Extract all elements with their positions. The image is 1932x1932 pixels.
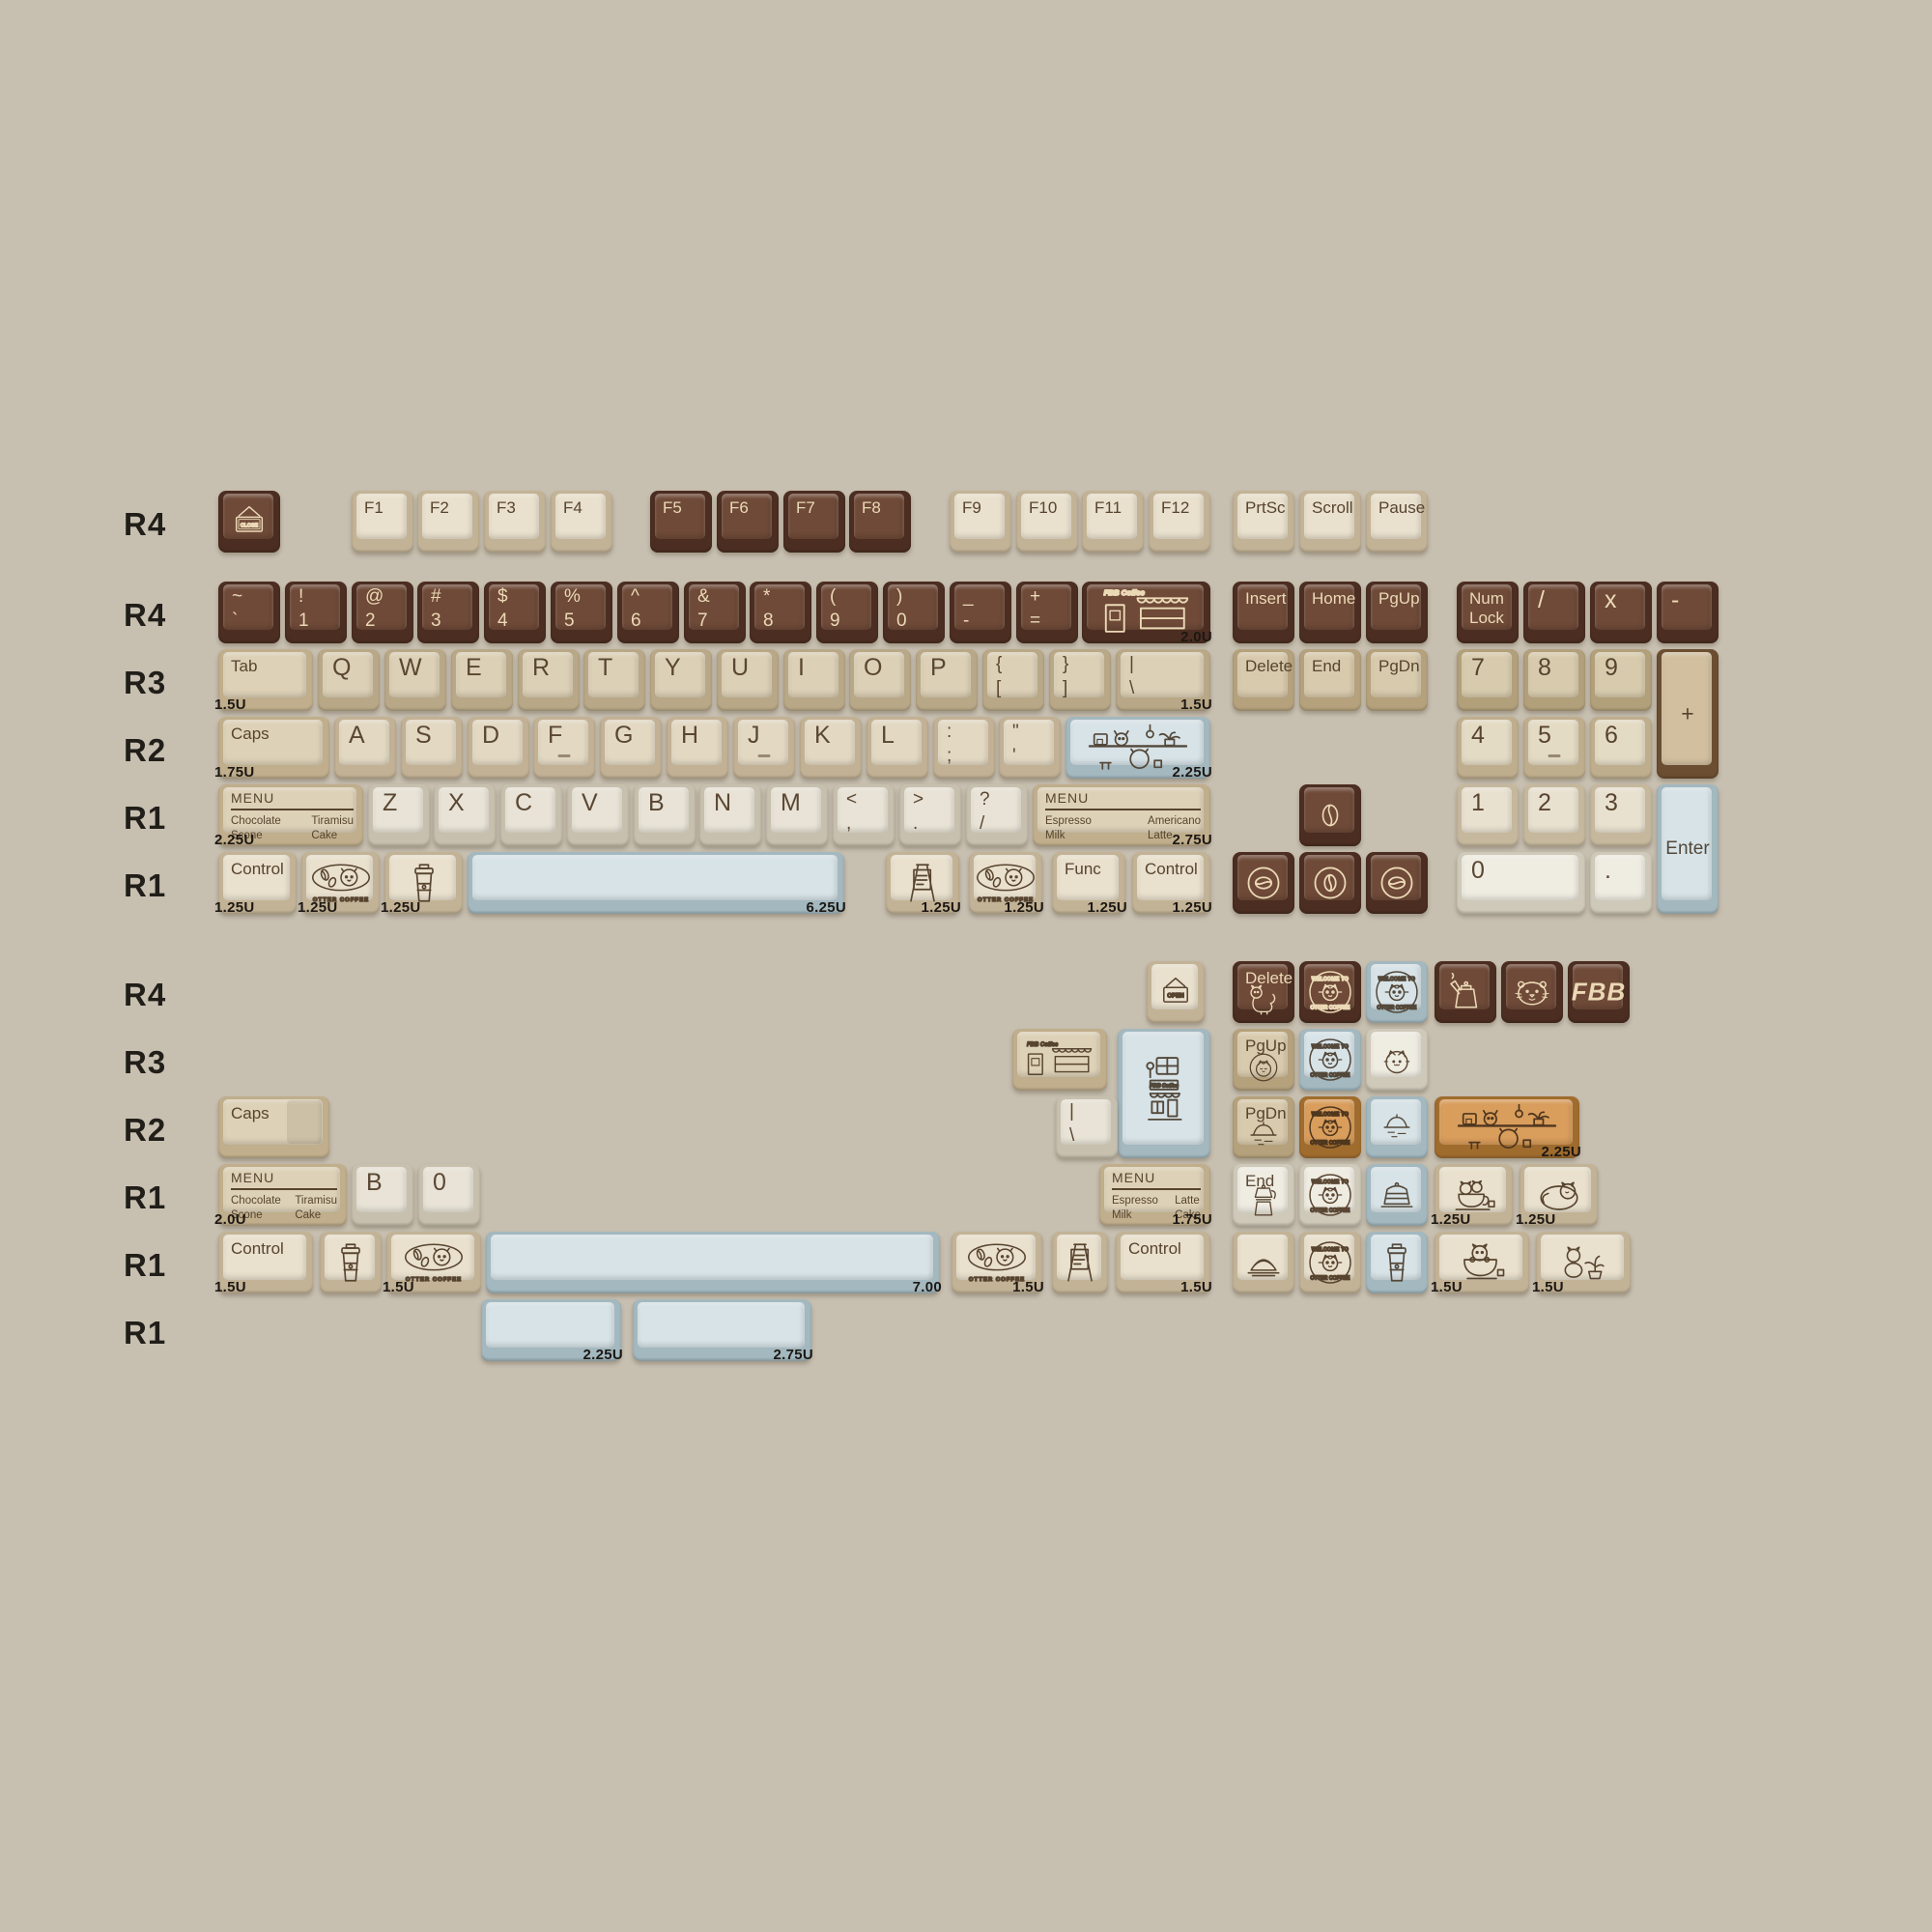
key-legend: PgDn <box>1378 657 1420 676</box>
menu-column: Espresso Milk <box>1045 814 1092 843</box>
key-bean-left <box>1233 852 1294 914</box>
catplant-icon <box>1561 1245 1605 1280</box>
size-label: 2.25U <box>582 1347 623 1363</box>
key-np-minus: - <box>1657 582 1719 643</box>
aframe-icon <box>905 862 940 904</box>
key-legend-pair: { [ <box>996 652 1002 700</box>
stamp-icon <box>1308 1037 1353 1083</box>
menu-title: MENU <box>1045 790 1201 810</box>
size-label: 1.5U <box>214 1279 246 1295</box>
keycap-top-face <box>987 652 1037 697</box>
catcurl-icon <box>1536 1178 1582 1212</box>
catstand-icon <box>1246 984 1281 1015</box>
otterface-icon <box>1513 976 1551 1009</box>
key-legend: - <box>1671 586 1679 614</box>
key-e: E <box>451 649 513 711</box>
beanc-icon <box>1313 866 1348 900</box>
key-space-625: 6.25U <box>468 852 844 914</box>
key-open-sign <box>1147 961 1205 1023</box>
key-w: W <box>384 649 446 711</box>
key-legend: 1 <box>1471 789 1485 817</box>
key-legend: x <box>1605 586 1617 614</box>
key-home: Home <box>1299 582 1361 643</box>
key-num9: ( 9 <box>816 582 878 643</box>
key-num8: * 8 <box>750 582 811 643</box>
key-legend: R <box>532 654 550 682</box>
key-legend: Home <box>1312 589 1355 609</box>
key-comma: < , <box>833 784 895 846</box>
key-legend: F3 <box>497 498 516 518</box>
key-caps-stepped: Caps <box>218 1096 329 1158</box>
key-end-moka: End <box>1233 1164 1294 1226</box>
key-cake-blue <box>1366 1164 1428 1226</box>
key-legend: 2 <box>1538 789 1551 817</box>
key-bean-mid <box>1299 852 1361 914</box>
keycap-set-board: R4R4R3R2R1R1R4R3R2R1R1R1F1F2F3F4F5F6F7F8… <box>0 0 1932 1932</box>
key-legend: Pause <box>1378 498 1425 518</box>
key-menu-175: MENUEspresso MilkLatte Cake1.75U <box>1099 1164 1210 1226</box>
key-lbracket: { [ <box>982 649 1044 711</box>
key-backslash: | \1.5U <box>1116 649 1210 711</box>
key-legend: PrtSc <box>1245 498 1286 518</box>
keycap-top-face <box>1595 720 1645 765</box>
keycap-top-face <box>1061 1099 1111 1145</box>
keycap-top-face <box>888 584 938 630</box>
row-label-6: R4 <box>124 977 166 1013</box>
key-pgup: PgUp <box>1366 582 1428 643</box>
key-control-2: Control1.25U <box>1132 852 1210 914</box>
key-f9: F9 <box>950 491 1011 553</box>
key-o: O <box>849 649 911 711</box>
key-legend: 8 <box>1538 654 1551 682</box>
key-cup-blue <box>1366 1232 1428 1293</box>
row-label-2: R3 <box>124 665 166 701</box>
row-label-1: R4 <box>124 597 166 634</box>
keycap-top-face <box>422 584 472 630</box>
key-control-1: Control1.25U <box>218 852 297 914</box>
menu-title: MENU <box>231 1170 337 1190</box>
key-stamp-blue-2 <box>1299 1029 1361 1091</box>
key-x: X <box>434 784 496 846</box>
key-np6: 6 <box>1590 717 1652 779</box>
keycap-top-face <box>1528 652 1578 697</box>
bean-icon <box>1316 800 1345 831</box>
key-f6: F6 <box>717 491 779 553</box>
key-np8: 8 <box>1523 649 1585 711</box>
key-y: Y <box>650 649 712 711</box>
key-prtsc: PrtSc <box>1233 491 1294 553</box>
key-tab: Tab1.5U <box>218 649 313 711</box>
key-np5: 5 <box>1523 717 1585 779</box>
key-space-700: 7.00 <box>486 1232 940 1293</box>
key-legend-pair: < , <box>846 787 857 836</box>
key-f10: F10 <box>1016 491 1078 553</box>
key-legend: A <box>349 722 365 750</box>
key-legend: Delete <box>1245 657 1293 676</box>
row-label-8: R2 <box>124 1112 166 1149</box>
key-legend: H <box>681 722 698 750</box>
key-f2: F2 <box>417 491 479 553</box>
key-delete-cat: Delete <box>1233 961 1294 1023</box>
key-legend: X <box>448 789 465 817</box>
stamp-icon <box>1308 970 1353 1015</box>
keycap-top-face <box>1595 787 1645 833</box>
size-label: 1.25U <box>1004 899 1044 916</box>
key-f12: F12 <box>1149 491 1210 553</box>
beanc-icon <box>1379 866 1414 900</box>
key-legend: Insert <box>1245 589 1287 609</box>
key-legend-pair: _ - <box>963 584 974 633</box>
key-np-plus: + <box>1657 649 1719 779</box>
key-t: T <box>583 649 645 711</box>
key-rbracket: } ] <box>1049 649 1111 711</box>
cake-icon <box>1378 1179 1416 1211</box>
key-np2: 2 <box>1523 784 1585 846</box>
otterlogo-icon <box>975 862 1037 904</box>
key-legend-pair: " ' <box>1012 720 1019 768</box>
key-legend-pair: & 7 <box>697 584 710 633</box>
key-otter-coffee-4: 1.5U <box>952 1232 1042 1293</box>
homing-bar <box>558 754 571 757</box>
stamp-icon <box>1308 1240 1353 1286</box>
keycap-top-face <box>1004 720 1054 765</box>
key-delete: Delete <box>1233 649 1294 711</box>
size-label: 6.25U <box>806 899 846 916</box>
row-label-10: R1 <box>124 1247 166 1284</box>
key-hat-blue <box>1366 1096 1428 1158</box>
keycap-top-face <box>821 584 871 630</box>
catface-icon <box>1378 1042 1415 1077</box>
key-teacup-big: 1.5U <box>1435 1232 1529 1293</box>
key-legend-pair: } ] <box>1063 652 1068 700</box>
size-label: 2.25U <box>214 832 255 848</box>
key-legend: F <box>548 722 562 750</box>
keycap-top-face <box>1054 652 1104 697</box>
key-legend: B <box>366 1169 383 1197</box>
key-f1: F1 <box>352 491 413 553</box>
key-legend: Tab <box>231 657 257 676</box>
key-legend-pair: @ 2 <box>365 584 384 633</box>
key-np9: 9 <box>1590 649 1652 711</box>
key-legend: Y <box>665 654 681 682</box>
keycap-top-face <box>1021 584 1071 630</box>
beanc-icon <box>1246 866 1281 900</box>
key-i: I <box>783 649 845 711</box>
key-legend: Z <box>383 789 397 817</box>
key-legend: O <box>864 654 882 682</box>
key-legend-pair: # 3 <box>431 584 441 633</box>
key-f7: F7 <box>783 491 845 553</box>
menu-title: MENU <box>231 790 354 810</box>
key-grave: ~ ` <box>218 582 280 643</box>
key-legend: W <box>399 654 422 682</box>
cup-icon <box>1382 1241 1411 1284</box>
hatfly-icon <box>1246 1120 1281 1151</box>
key-legend: F8 <box>862 498 881 518</box>
row-label-5: R1 <box>124 867 166 904</box>
key-legend: D <box>482 722 499 750</box>
key-legend: Control <box>1145 860 1198 879</box>
key-legend-pair: > . <box>913 787 923 836</box>
key-caps: Caps1.75U <box>218 717 329 779</box>
size-label: 1.25U <box>214 899 255 916</box>
key-s: S <box>401 717 463 779</box>
key-v: V <box>567 784 629 846</box>
teacupbig-icon <box>1459 1243 1505 1282</box>
pie-icon <box>1244 1246 1283 1279</box>
key-num4: $ 4 <box>484 582 546 643</box>
catsleep-icon <box>1247 1052 1280 1083</box>
keycap-top-face <box>489 584 539 630</box>
key-pgup-cat: PgUp <box>1233 1029 1294 1091</box>
keycap-top-face <box>954 584 1005 630</box>
key-insert: Insert <box>1233 582 1294 643</box>
key-num2: @ 2 <box>352 582 413 643</box>
key-fbb-logo: FBB <box>1568 961 1630 1023</box>
size-label: 7.00 <box>913 1279 942 1295</box>
key-b: B <box>634 784 696 846</box>
row-label-0: R4 <box>124 506 166 543</box>
key-legend: F11 <box>1094 498 1122 518</box>
size-label: 2.0U <box>214 1211 246 1228</box>
size-label: 1.25U <box>381 899 421 916</box>
key-legend: F6 <box>729 498 749 518</box>
key-shop-tall-blue <box>1118 1029 1210 1158</box>
key-legend: F10 <box>1029 498 1057 518</box>
key-legend-pair: % 5 <box>564 584 581 633</box>
key-otter-face <box>1501 961 1563 1023</box>
key-pgdn-hat: PgDn <box>1233 1096 1294 1158</box>
size-label: 1.75U <box>1172 1211 1212 1228</box>
keycap-top-face <box>1462 787 1512 833</box>
key-f: F <box>533 717 595 779</box>
keycap-top-face <box>1595 855 1645 900</box>
key-k: K <box>800 717 862 779</box>
key-shelf-orange: 2.25U <box>1435 1096 1579 1158</box>
key-numlock: Num Lock <box>1457 582 1519 643</box>
key-legend-pair: * 8 <box>763 584 774 633</box>
key-legend: 6 <box>1605 722 1618 750</box>
key-f5: F5 <box>650 491 712 553</box>
keycap-top-face <box>555 584 606 630</box>
key-legend: F1 <box>364 498 384 518</box>
keycap-top-face <box>838 787 888 833</box>
key-bean-top <box>1299 784 1361 846</box>
key-sign-2 <box>1052 1232 1108 1293</box>
key-kettle <box>1435 961 1496 1023</box>
key-legend-pair: | \ <box>1069 1099 1074 1148</box>
key-shop-beige <box>1012 1029 1107 1091</box>
key-np1: 1 <box>1457 784 1519 846</box>
size-label: 1.25U <box>921 899 961 916</box>
key-m: M <box>766 784 828 846</box>
key-legend: + <box>1657 701 1719 727</box>
key-legend: Caps <box>231 1104 270 1123</box>
key-a: A <box>334 717 396 779</box>
key-legend-pair: | \ <box>1129 652 1134 700</box>
size-label: 2.25U <box>1541 1144 1581 1160</box>
key-num1: ! 1 <box>285 582 347 643</box>
row-label-11: R1 <box>124 1315 166 1351</box>
key-legend: Q <box>332 654 351 682</box>
key-q: Q <box>318 649 380 711</box>
shoptall-icon <box>1144 1039 1184 1148</box>
size-label: 1.5U <box>1012 1279 1044 1295</box>
key-otter-coffee-2: 1.25U <box>969 852 1042 914</box>
key-stamp-white <box>1299 1164 1361 1226</box>
key-num7: & 7 <box>684 582 746 643</box>
keycap-top-face <box>1595 652 1645 697</box>
row-label-4: R1 <box>124 800 166 837</box>
key-zero-white: 0 <box>418 1164 480 1226</box>
key-equals: + = <box>1016 582 1078 643</box>
keycap-top-face <box>754 584 805 630</box>
key-space-275: 2.75U <box>633 1299 811 1361</box>
menu-title: MENU <box>1112 1170 1201 1190</box>
key-np-div: / <box>1523 582 1585 643</box>
key-menu-left: MENUChocolate SconeTiramisu Cake2.25U <box>218 784 363 846</box>
key-minus: _ - <box>950 582 1011 643</box>
key-g: G <box>600 717 662 779</box>
size-label: 2.75U <box>1172 832 1212 848</box>
otterlogo-icon <box>310 862 372 904</box>
key-np3: 3 <box>1590 784 1652 846</box>
key-legend: V <box>582 789 598 817</box>
key-legend: Control <box>231 860 284 879</box>
size-label: 1.25U <box>298 899 338 916</box>
keycap-top-face <box>971 787 1021 833</box>
key-legend: T <box>598 654 612 682</box>
key-cat-curl: 1.25U <box>1520 1164 1598 1226</box>
keycap-top-face <box>1528 584 1578 630</box>
key-legend-pair: ( 9 <box>830 584 840 633</box>
size-label: 1.5U <box>1431 1279 1463 1295</box>
key-l: L <box>867 717 928 779</box>
key-pgdn: PgDn <box>1366 649 1428 711</box>
keycap-top-face <box>588 652 639 697</box>
keycap-top-face <box>290 584 340 630</box>
keycap-top-face <box>491 1235 933 1280</box>
keycap-top-face <box>871 720 922 765</box>
caps-step <box>287 1100 322 1144</box>
key-legend: End <box>1312 657 1341 676</box>
row-label-7: R3 <box>124 1044 166 1081</box>
key-esc-close <box>218 491 280 553</box>
size-label: 2.25U <box>1172 764 1212 781</box>
size-label: 1.5U <box>1180 696 1212 713</box>
key-period: > . <box>899 784 961 846</box>
keycap-top-face <box>538 720 588 765</box>
key-f3: F3 <box>484 491 546 553</box>
key-legend: Control <box>1128 1239 1181 1259</box>
key-num5: % 5 <box>551 582 612 643</box>
key-end: End <box>1299 649 1361 711</box>
key-b-white: B <box>352 1164 413 1226</box>
key-legend: N <box>714 789 731 817</box>
key-legend: J <box>748 722 760 750</box>
key-legend-pair: : ; <box>947 720 952 768</box>
size-label: 1.25U <box>1172 899 1212 916</box>
key-np-dot: . <box>1590 852 1652 914</box>
key-np4: 4 <box>1457 717 1519 779</box>
key-legend: I <box>798 654 805 682</box>
key-pause: Pause <box>1366 491 1428 553</box>
keycap-top-face <box>938 720 988 765</box>
key-legend: . <box>1605 857 1611 885</box>
keycap-top-face <box>689 584 739 630</box>
key-semicolon: : ; <box>933 717 995 779</box>
otterlogo-icon <box>403 1241 465 1284</box>
key-legend-pair: ~ ` <box>232 584 242 633</box>
key-f8: F8 <box>849 491 911 553</box>
key-f4: F4 <box>551 491 612 553</box>
key-func: Func1.25U <box>1052 852 1125 914</box>
key-teacup-otters: 1.25U <box>1435 1164 1513 1226</box>
key-cup-1: 1.25U <box>384 852 463 914</box>
key-np0: 0 <box>1457 852 1585 914</box>
key-control-3: Control1.5U <box>218 1232 313 1293</box>
keycap-top-face <box>1462 720 1512 765</box>
row-label-3: R2 <box>124 732 166 769</box>
key-u: U <box>717 649 779 711</box>
key-legend: M <box>781 789 801 817</box>
key-legend: Scroll <box>1312 498 1353 518</box>
key-legend: F5 <box>663 498 682 518</box>
size-label: 1.5U <box>1532 1279 1564 1295</box>
key-legend: F9 <box>962 498 981 518</box>
key-menu-2u: MENUChocolate SconeTiramisu Cake2.0U <box>218 1164 347 1226</box>
key-legend: 3 <box>1605 789 1618 817</box>
key-legend-pair: + = <box>1030 584 1040 633</box>
key-num3: # 3 <box>417 582 479 643</box>
size-label: 1.25U <box>1087 899 1127 916</box>
key-legend: F7 <box>796 498 815 518</box>
size-label: 1.5U <box>214 696 246 713</box>
key-p: P <box>916 649 978 711</box>
close-icon <box>230 503 269 540</box>
menu-column: Tiramisu Cake <box>311 814 354 843</box>
key-legend: 7 <box>1471 654 1485 682</box>
stamp-icon <box>1308 1173 1353 1218</box>
key-stamp-brown <box>1299 961 1361 1023</box>
key-legend: C <box>515 789 532 817</box>
row-label-9: R1 <box>124 1179 166 1216</box>
key-stamp-orange <box>1299 1096 1361 1158</box>
key-legend: E <box>466 654 482 682</box>
key-menu-right: MENUEspresso MilkAmericano Latte2.75U <box>1033 784 1210 846</box>
key-np-enter: Enter <box>1657 784 1719 914</box>
shopwide-icon <box>1018 1038 1101 1081</box>
key-legend: Control <box>231 1239 284 1259</box>
keycap-top-face <box>1462 652 1512 697</box>
keycap-top-face <box>788 652 838 697</box>
key-cat-face-white <box>1366 1029 1428 1091</box>
key-legend: 9 <box>1605 654 1618 682</box>
menu-column: Tiramisu Cake <box>295 1194 337 1223</box>
key-num0: ) 0 <box>883 582 945 643</box>
key-legend: 0 <box>433 1169 446 1197</box>
key-legend: / <box>1538 586 1545 614</box>
key-space-225: 2.25U <box>481 1299 621 1361</box>
hatfly-icon <box>1379 1112 1414 1143</box>
key-legend: U <box>731 654 749 682</box>
keycap-top-face <box>223 584 273 630</box>
cup-icon <box>410 862 439 904</box>
size-label: 1.25U <box>1431 1211 1471 1228</box>
key-legend-pair: ? / <box>980 787 990 836</box>
key-stamp-cream <box>1299 1232 1361 1293</box>
key-slash: ? / <box>966 784 1028 846</box>
